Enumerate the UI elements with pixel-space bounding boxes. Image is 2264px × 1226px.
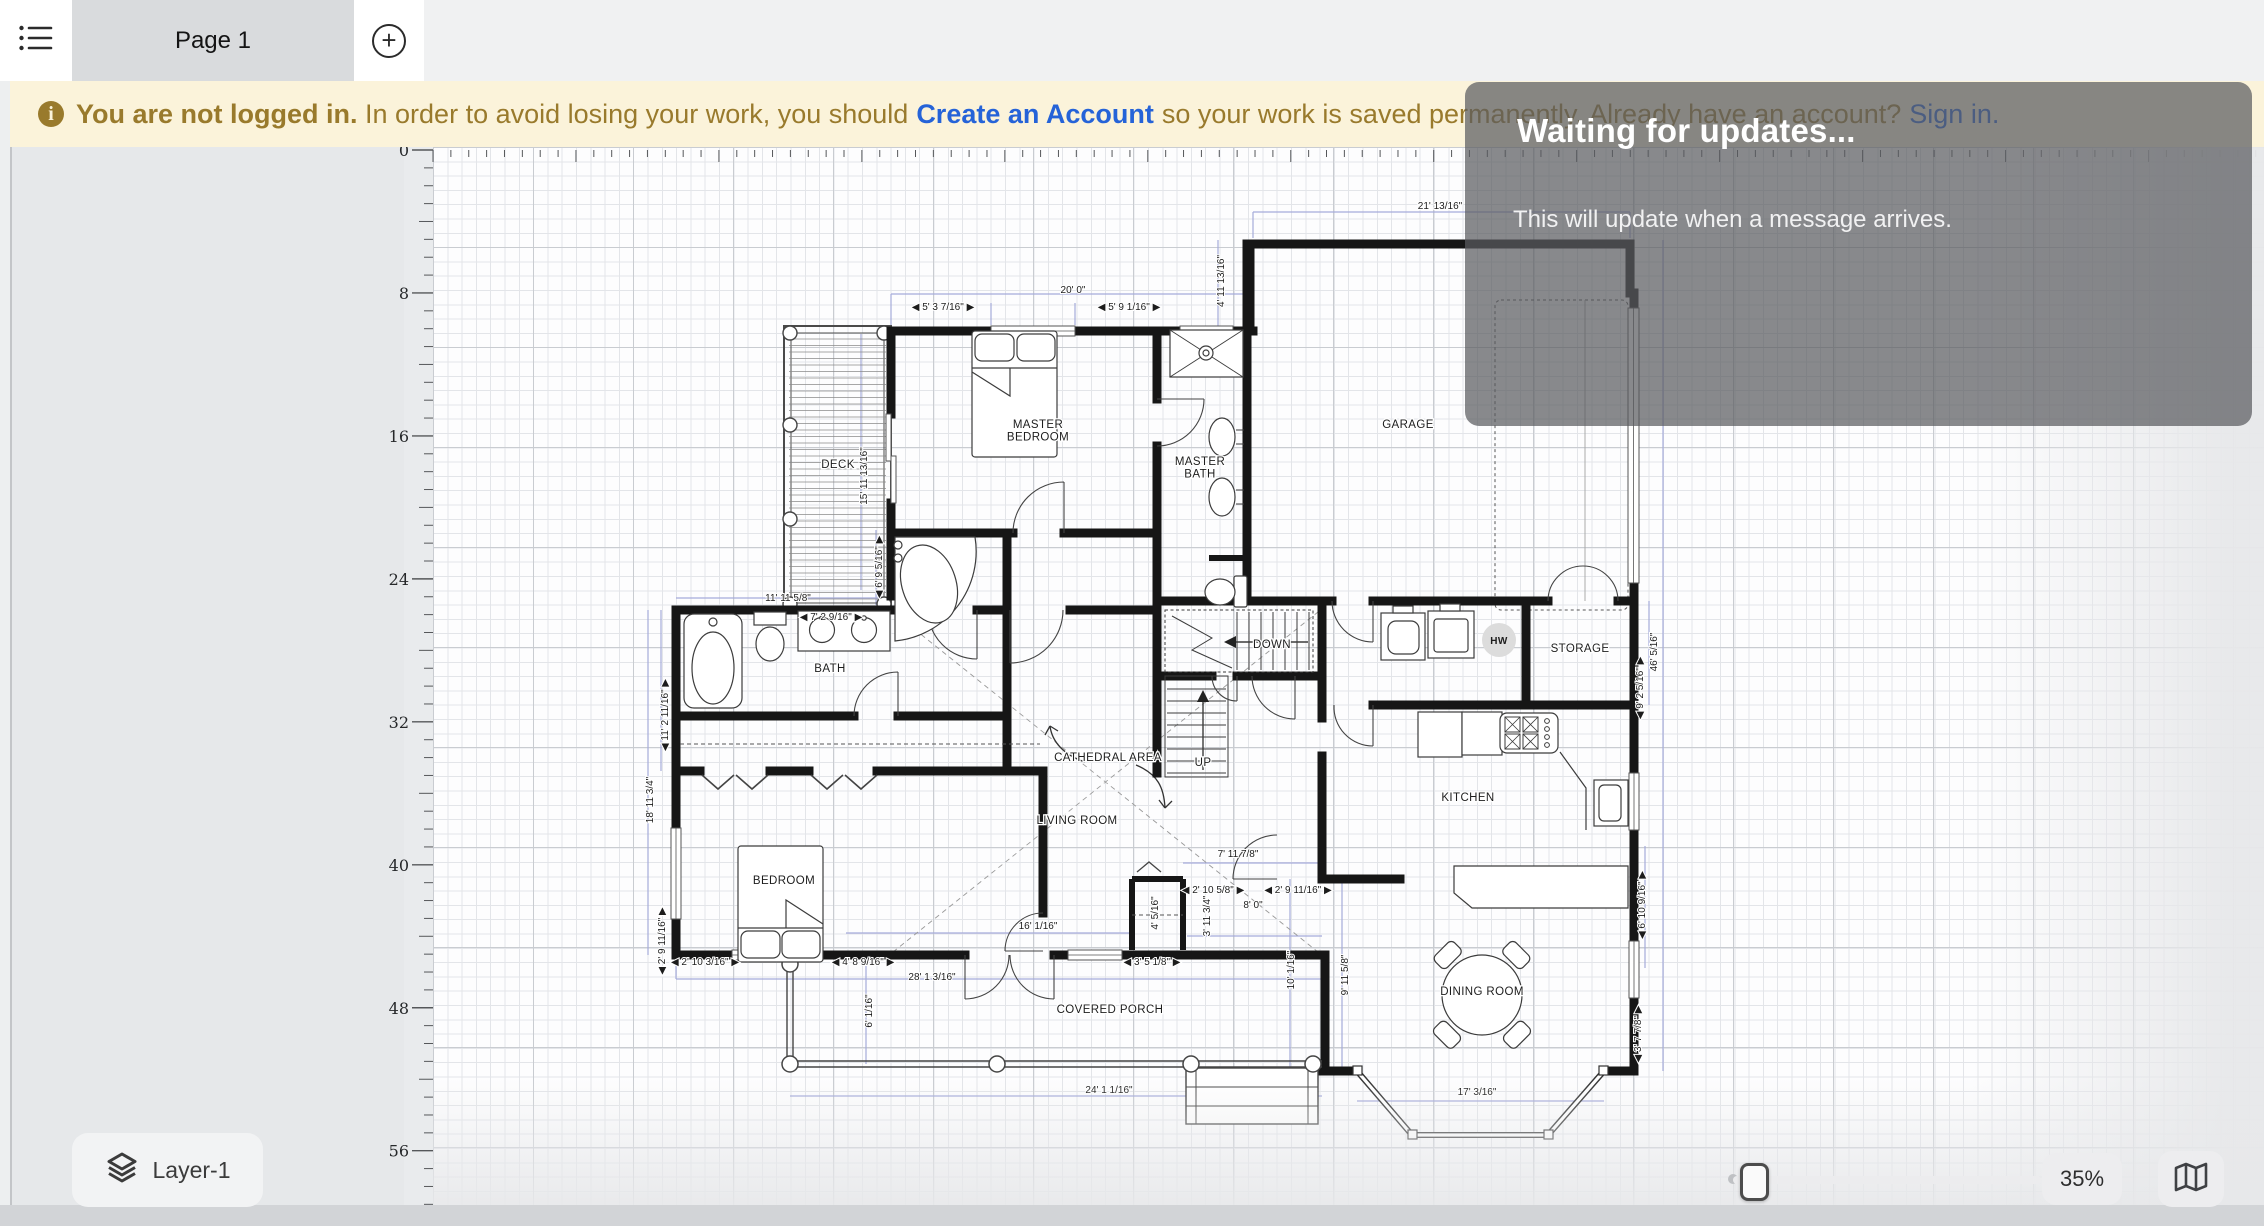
add-page-button[interactable]: + — [354, 0, 424, 81]
dimension-label: ◀ 2' 10 5/8" ▶ — [1182, 885, 1245, 896]
dimension-label: 46' 5/16" — [1649, 632, 1660, 671]
waiting-message: This will update when a message arrives. — [1513, 206, 2252, 234]
tab-page-1[interactable]: Page 1 — [72, 0, 354, 81]
dimension-label: 17' 3/16" — [1458, 1087, 1497, 1098]
list-menu-icon — [19, 23, 53, 58]
room-label: MASTERBATH — [1175, 456, 1225, 481]
pages-menu-button[interactable] — [0, 0, 72, 81]
dimension-label: 20' 0" — [1061, 285, 1086, 296]
dimension-label: ◀ 3' 7 7/8" ▶ — [1633, 1005, 1644, 1062]
dimension-label: ◀ 5' 3 7/16" ▶ — [912, 302, 975, 313]
room-label: DINING ROOM — [1440, 986, 1524, 998]
doors — [854, 399, 1618, 999]
tab-label: Page 1 — [175, 27, 251, 55]
room-label: DECK — [821, 459, 855, 471]
dimension-label: ◀ 9' 2 5/16" ▶ — [1635, 656, 1646, 719]
dimension-label: ◀ 3' 5 1/8" ▶ — [1124, 957, 1181, 968]
dimension-label: 8' 0" — [1243, 900, 1263, 911]
left-panel-gutter[interactable] — [0, 81, 12, 1205]
dimension-label: 4' 5/16" — [1150, 896, 1161, 930]
ruler-label: 32 — [389, 713, 409, 732]
bifold-doors — [702, 775, 877, 789]
room-label: COVERED PORCH — [1057, 1004, 1164, 1016]
room-label: HW — [1490, 636, 1508, 647]
ruler-label: 16 — [389, 427, 409, 446]
dimension-label: ◀ 2' 9 11/16" ▶ — [1264, 885, 1332, 896]
bottom-scroll-bar[interactable] — [0, 1205, 2264, 1226]
zoom-percent-label: 35% — [2060, 1166, 2104, 1192]
create-account-link[interactable]: Create an Account — [916, 99, 1154, 130]
waiting-title: Waiting for updates... — [1517, 112, 2252, 150]
app-window: 08162432404856 DECKMASTERBEDROOMMASTERBA… — [0, 0, 2264, 1226]
room-label: LIVING ROOM — [1036, 815, 1117, 827]
info-icon: i — [38, 101, 64, 127]
layer-button[interactable]: Layer-1 — [72, 1133, 263, 1207]
layer-button-label: Layer-1 — [153, 1157, 231, 1184]
ruler-label: 48 — [389, 999, 409, 1018]
dimension-label: 4' 11 13/16" — [1216, 255, 1227, 307]
dimension-label: 16' 1/16" — [1019, 921, 1058, 932]
banner-text-1: In order to avoid losing your work, you … — [365, 99, 908, 130]
ruler-label: 40 — [389, 856, 409, 875]
layers-icon — [105, 1151, 139, 1189]
dimension-label: ◀ 4' 8 9/16" ▶ — [832, 957, 895, 968]
map-icon — [2174, 1162, 2208, 1197]
porch-railing — [782, 956, 1322, 1124]
dimension-label: 24' 1 1/16" — [1085, 1085, 1133, 1096]
waiting-for-updates-panel: Waiting for updates... This will update … — [1465, 82, 2252, 426]
ruler-label: 24 — [389, 570, 409, 589]
bay-window — [1353, 1066, 1608, 1139]
room-label: BEDROOM — [753, 875, 815, 887]
dimension-label: 18' 11 3/4" — [645, 776, 656, 823]
dimension-label: 7' 11 7/8" — [1218, 849, 1259, 860]
room-label: GARAGE — [1382, 419, 1434, 431]
zoom-slider-track[interactable] — [1733, 1176, 2041, 1184]
dimension-label: ◀ 2' 10 3/16" ▶ — [671, 957, 739, 968]
dimension-label: 11' 11 5/8" — [765, 593, 811, 604]
room-label: DOWN — [1253, 639, 1291, 651]
top-bar: Page 1 + — [0, 0, 2264, 81]
room-label: STORAGE — [1551, 643, 1610, 655]
dimension-label: ◀ 7' 2 9/16" ▶ — [800, 612, 863, 623]
room-label: BATH — [814, 663, 845, 675]
dimension-label: ◀ 2' 9 11/16" ▶ — [657, 907, 668, 975]
dimension-label: 9' 11 5/8" — [1340, 954, 1351, 995]
room-label: KITCHEN — [1441, 792, 1494, 804]
room-label: MASTERBEDROOM — [1007, 419, 1069, 444]
dimension-label: 6' 1/16" — [864, 994, 875, 1028]
room-label: CATHEDRAL AREA — [1054, 752, 1162, 764]
dimension-label: ◀ 5' 9 1/16" ▶ — [1098, 302, 1161, 313]
dimension-label: ◀ 11' 2 11/16" ▶ — [660, 679, 671, 751]
ruler-label: 0 — [399, 147, 409, 160]
dimension-label: 21' 13/16" — [1418, 201, 1463, 212]
dimension-label: ◀ 6' 10 9/16" ▶ — [1637, 871, 1648, 939]
ruler-label: 56 — [389, 1142, 409, 1161]
dimension-label: 28' 1 3/16" — [908, 972, 956, 983]
dimension-label: ◀ 6' 9 5/16" ▶ — [874, 535, 885, 598]
banner-bold-text: You are not logged in. — [76, 99, 358, 130]
zoom-slider-handle[interactable] — [1740, 1163, 1769, 1201]
stairs — [1165, 610, 1313, 777]
dimension-label: 15' 11 13/16" — [859, 447, 870, 505]
dimension-label: 3' 11 3/4" — [1202, 895, 1213, 936]
room-label: UP — [1195, 757, 1212, 769]
zoom-percent-button[interactable]: 35% — [2042, 1153, 2122, 1205]
ruler-label: 8 — [399, 284, 409, 303]
minimap-button[interactable] — [2158, 1151, 2224, 1207]
dimension-label: 10' 1/16" — [1286, 950, 1297, 989]
plus-icon: + — [372, 24, 406, 58]
